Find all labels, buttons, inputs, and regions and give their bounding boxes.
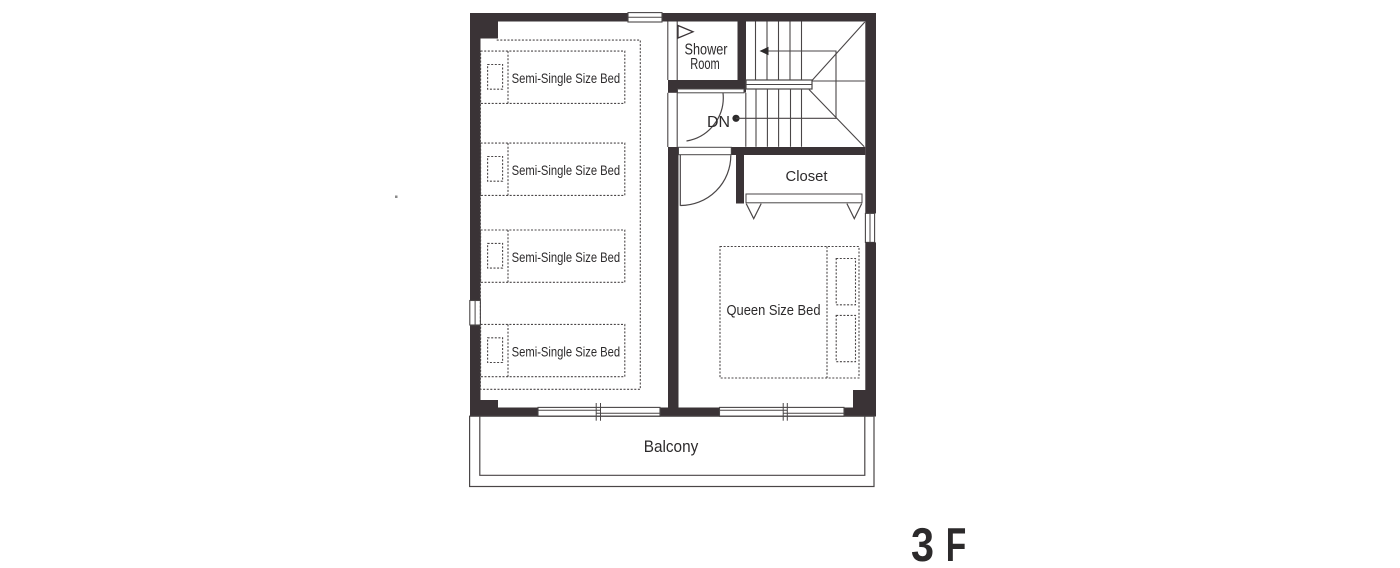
svg-text:Closet: Closet: [786, 168, 829, 185]
svg-text:DN: DN: [707, 114, 730, 131]
svg-text:Semi-Single Size Bed: Semi-Single Size Bed: [512, 343, 621, 359]
svg-text:F: F: [946, 518, 967, 568]
svg-text:Room: Room: [690, 56, 720, 73]
svg-text:Semi-Single Size Bed: Semi-Single Size Bed: [512, 70, 621, 86]
svg-text:Semi-Single Size Bed: Semi-Single Size Bed: [512, 162, 621, 178]
svg-text:Queen Size Bed: Queen Size Bed: [727, 302, 821, 319]
svg-text:3: 3: [911, 518, 934, 568]
svg-text:Semi-Single Size Bed: Semi-Single Size Bed: [512, 249, 621, 265]
svg-text:Balcony: Balcony: [644, 438, 699, 456]
